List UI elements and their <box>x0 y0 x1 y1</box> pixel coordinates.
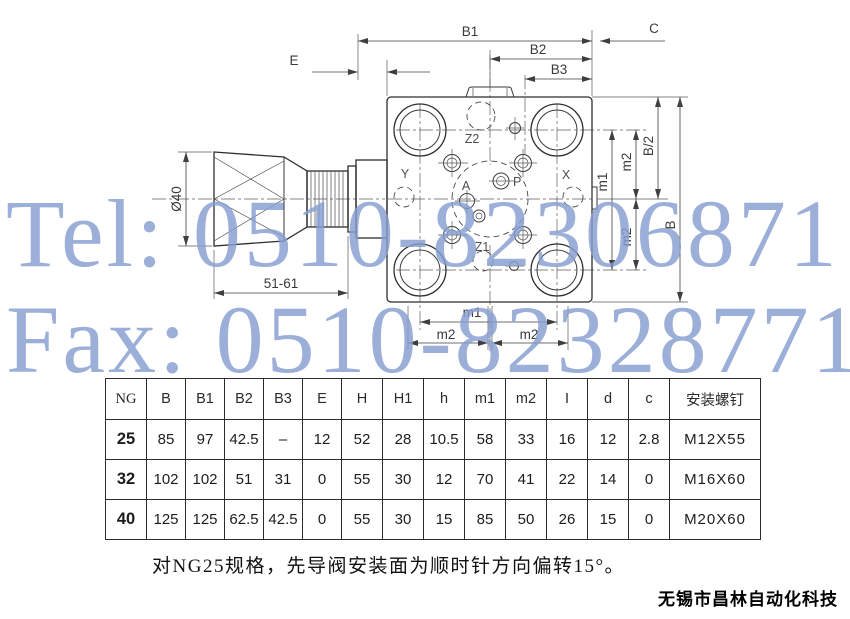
cell-screw: M20X60 <box>670 500 761 540</box>
cell: 12 <box>424 460 465 500</box>
dim-label-b1: B1 <box>462 24 479 39</box>
cell: 31 <box>264 460 303 500</box>
dim-label-m1-bottom: m1 <box>463 305 482 320</box>
cell-ng: 25 <box>106 420 147 460</box>
dim-label-e: E <box>289 53 298 68</box>
valve-technical-drawing: Z2 Y X A P Z1 B1 <box>0 0 850 378</box>
cell: 51 <box>225 460 264 500</box>
header-m2: m2 <box>506 379 547 420</box>
cell: 41 <box>506 460 547 500</box>
cell: 125 <box>186 500 225 540</box>
header-b3: B3 <box>264 379 303 420</box>
cell-screw: M12X55 <box>670 420 761 460</box>
cell: 14 <box>588 460 629 500</box>
dim-label-dia40: Ø40 <box>169 186 184 212</box>
dim-label-m2-bottom-left: m2 <box>437 327 456 342</box>
table-header-row: NG B B1 B2 B3 E H H1 h m1 m2 I d c 安装螺钉 <box>106 379 761 420</box>
cell: 26 <box>547 500 588 540</box>
cell: 2.8 <box>629 420 670 460</box>
header-c: c <box>629 379 670 420</box>
header-h-cap: H <box>342 379 383 420</box>
cell: 42.5 <box>264 500 303 540</box>
dim-label-m2-right-bottom: m2 <box>619 228 634 247</box>
dim-label-m2-right-top: m2 <box>619 153 634 172</box>
header-b1: B1 <box>186 379 225 420</box>
header-mounting-screw: 安装螺钉 <box>670 379 761 420</box>
cell: 12 <box>588 420 629 460</box>
cell: 12 <box>303 420 342 460</box>
cell: 30 <box>383 460 424 500</box>
header-b2: B2 <box>225 379 264 420</box>
centerlines <box>152 55 648 352</box>
cell: 85 <box>147 420 186 460</box>
cell: 0 <box>303 460 342 500</box>
cell: 30 <box>383 500 424 540</box>
cell: 42.5 <box>225 420 264 460</box>
table-row-ng25: 25 85 97 42.5 – 12 52 28 10.5 58 33 16 1… <box>106 420 761 460</box>
dim-label-b2: B2 <box>530 42 547 57</box>
port-z2 <box>467 102 495 130</box>
cell: 10.5 <box>424 420 465 460</box>
label-p: P <box>513 175 521 189</box>
cell: 28 <box>383 420 424 460</box>
header-e: E <box>303 379 342 420</box>
cell: 33 <box>506 420 547 460</box>
header-m1: m1 <box>465 379 506 420</box>
dim-label-b3: B3 <box>551 62 568 77</box>
dim-label-range: 51-61 <box>264 276 299 291</box>
cell: 62.5 <box>225 500 264 540</box>
dim-label-b-half: B/2 <box>641 136 656 156</box>
header-h: h <box>424 379 465 420</box>
cell: 102 <box>186 460 225 500</box>
cell: 52 <box>342 420 383 460</box>
dim-label-b-right: B <box>663 220 678 229</box>
dimension-table: NG B B1 B2 B3 E H H1 h m1 m2 I d c 安装螺钉 … <box>105 378 761 540</box>
mounting-holes <box>394 104 583 296</box>
cell-ng: 32 <box>106 460 147 500</box>
header-b: B <box>147 379 186 420</box>
table-row-ng32: 32 102 102 51 31 0 55 30 12 70 41 22 14 … <box>106 460 761 500</box>
cell: 15 <box>424 500 465 540</box>
cell: 0 <box>303 500 342 540</box>
company-name: 无锡市昌林自动化科技 <box>658 585 838 610</box>
label-x: X <box>562 168 571 182</box>
label-y: Y <box>401 167 410 181</box>
cell-ng: 40 <box>106 500 147 540</box>
cell: 0 <box>629 500 670 540</box>
label-a: A <box>462 179 471 193</box>
cell: 70 <box>465 460 506 500</box>
cell: 58 <box>465 420 506 460</box>
cell: 55 <box>342 460 383 500</box>
cell: 0 <box>629 460 670 500</box>
cell: 50 <box>506 500 547 540</box>
table-row-ng40: 40 125 125 62.5 42.5 0 55 30 15 85 50 26… <box>106 500 761 540</box>
cell: – <box>264 420 303 460</box>
header-ng: NG <box>106 379 147 420</box>
page: Z2 Y X A P Z1 B1 <box>0 0 850 619</box>
cell: 55 <box>342 500 383 540</box>
cell: 125 <box>147 500 186 540</box>
cell: 15 <box>588 500 629 540</box>
header-d: d <box>588 379 629 420</box>
dim-label-m1-right: m1 <box>595 173 610 192</box>
cell: 16 <box>547 420 588 460</box>
cell: 102 <box>147 460 186 500</box>
cell: 97 <box>186 420 225 460</box>
label-z1: Z1 <box>475 240 490 254</box>
header-i: I <box>547 379 588 420</box>
label-z2: Z2 <box>465 132 480 146</box>
footnote: 对NG25规格，先导阀安装面为顺时针方向偏转15°。 <box>152 551 625 578</box>
header-h1: H1 <box>383 379 424 420</box>
dim-label-m2-bottom-right: m2 <box>520 327 539 342</box>
cell: 85 <box>465 500 506 540</box>
cell-screw: M16X60 <box>670 460 761 500</box>
port-y <box>394 187 414 207</box>
port-x <box>563 187 583 207</box>
dim-label-c: C <box>649 21 659 36</box>
cell: 22 <box>547 460 588 500</box>
